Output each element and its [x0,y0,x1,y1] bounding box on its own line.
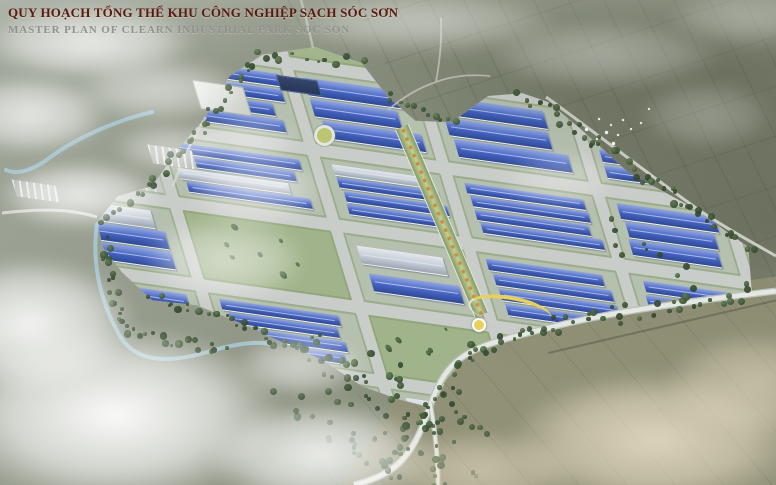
rendering-canvas: QUY HOẠCH TỔNG THỂ KHU CÔNG NGHIỆP SẠCH … [0,0,776,485]
plan-title-english: MASTER PLAN OF CLEARN INDUSTRIAL PARK SO… [8,24,398,36]
plan-title-block: QUY HOẠCH TỔNG THỂ KHU CÔNG NGHIỆP SẠCH … [8,5,398,36]
plan-title-vietnamese: QUY HOẠCH TỔNG THỂ KHU CÔNG NGHIỆP SẠCH … [8,5,398,21]
haze-vignette [0,0,776,485]
